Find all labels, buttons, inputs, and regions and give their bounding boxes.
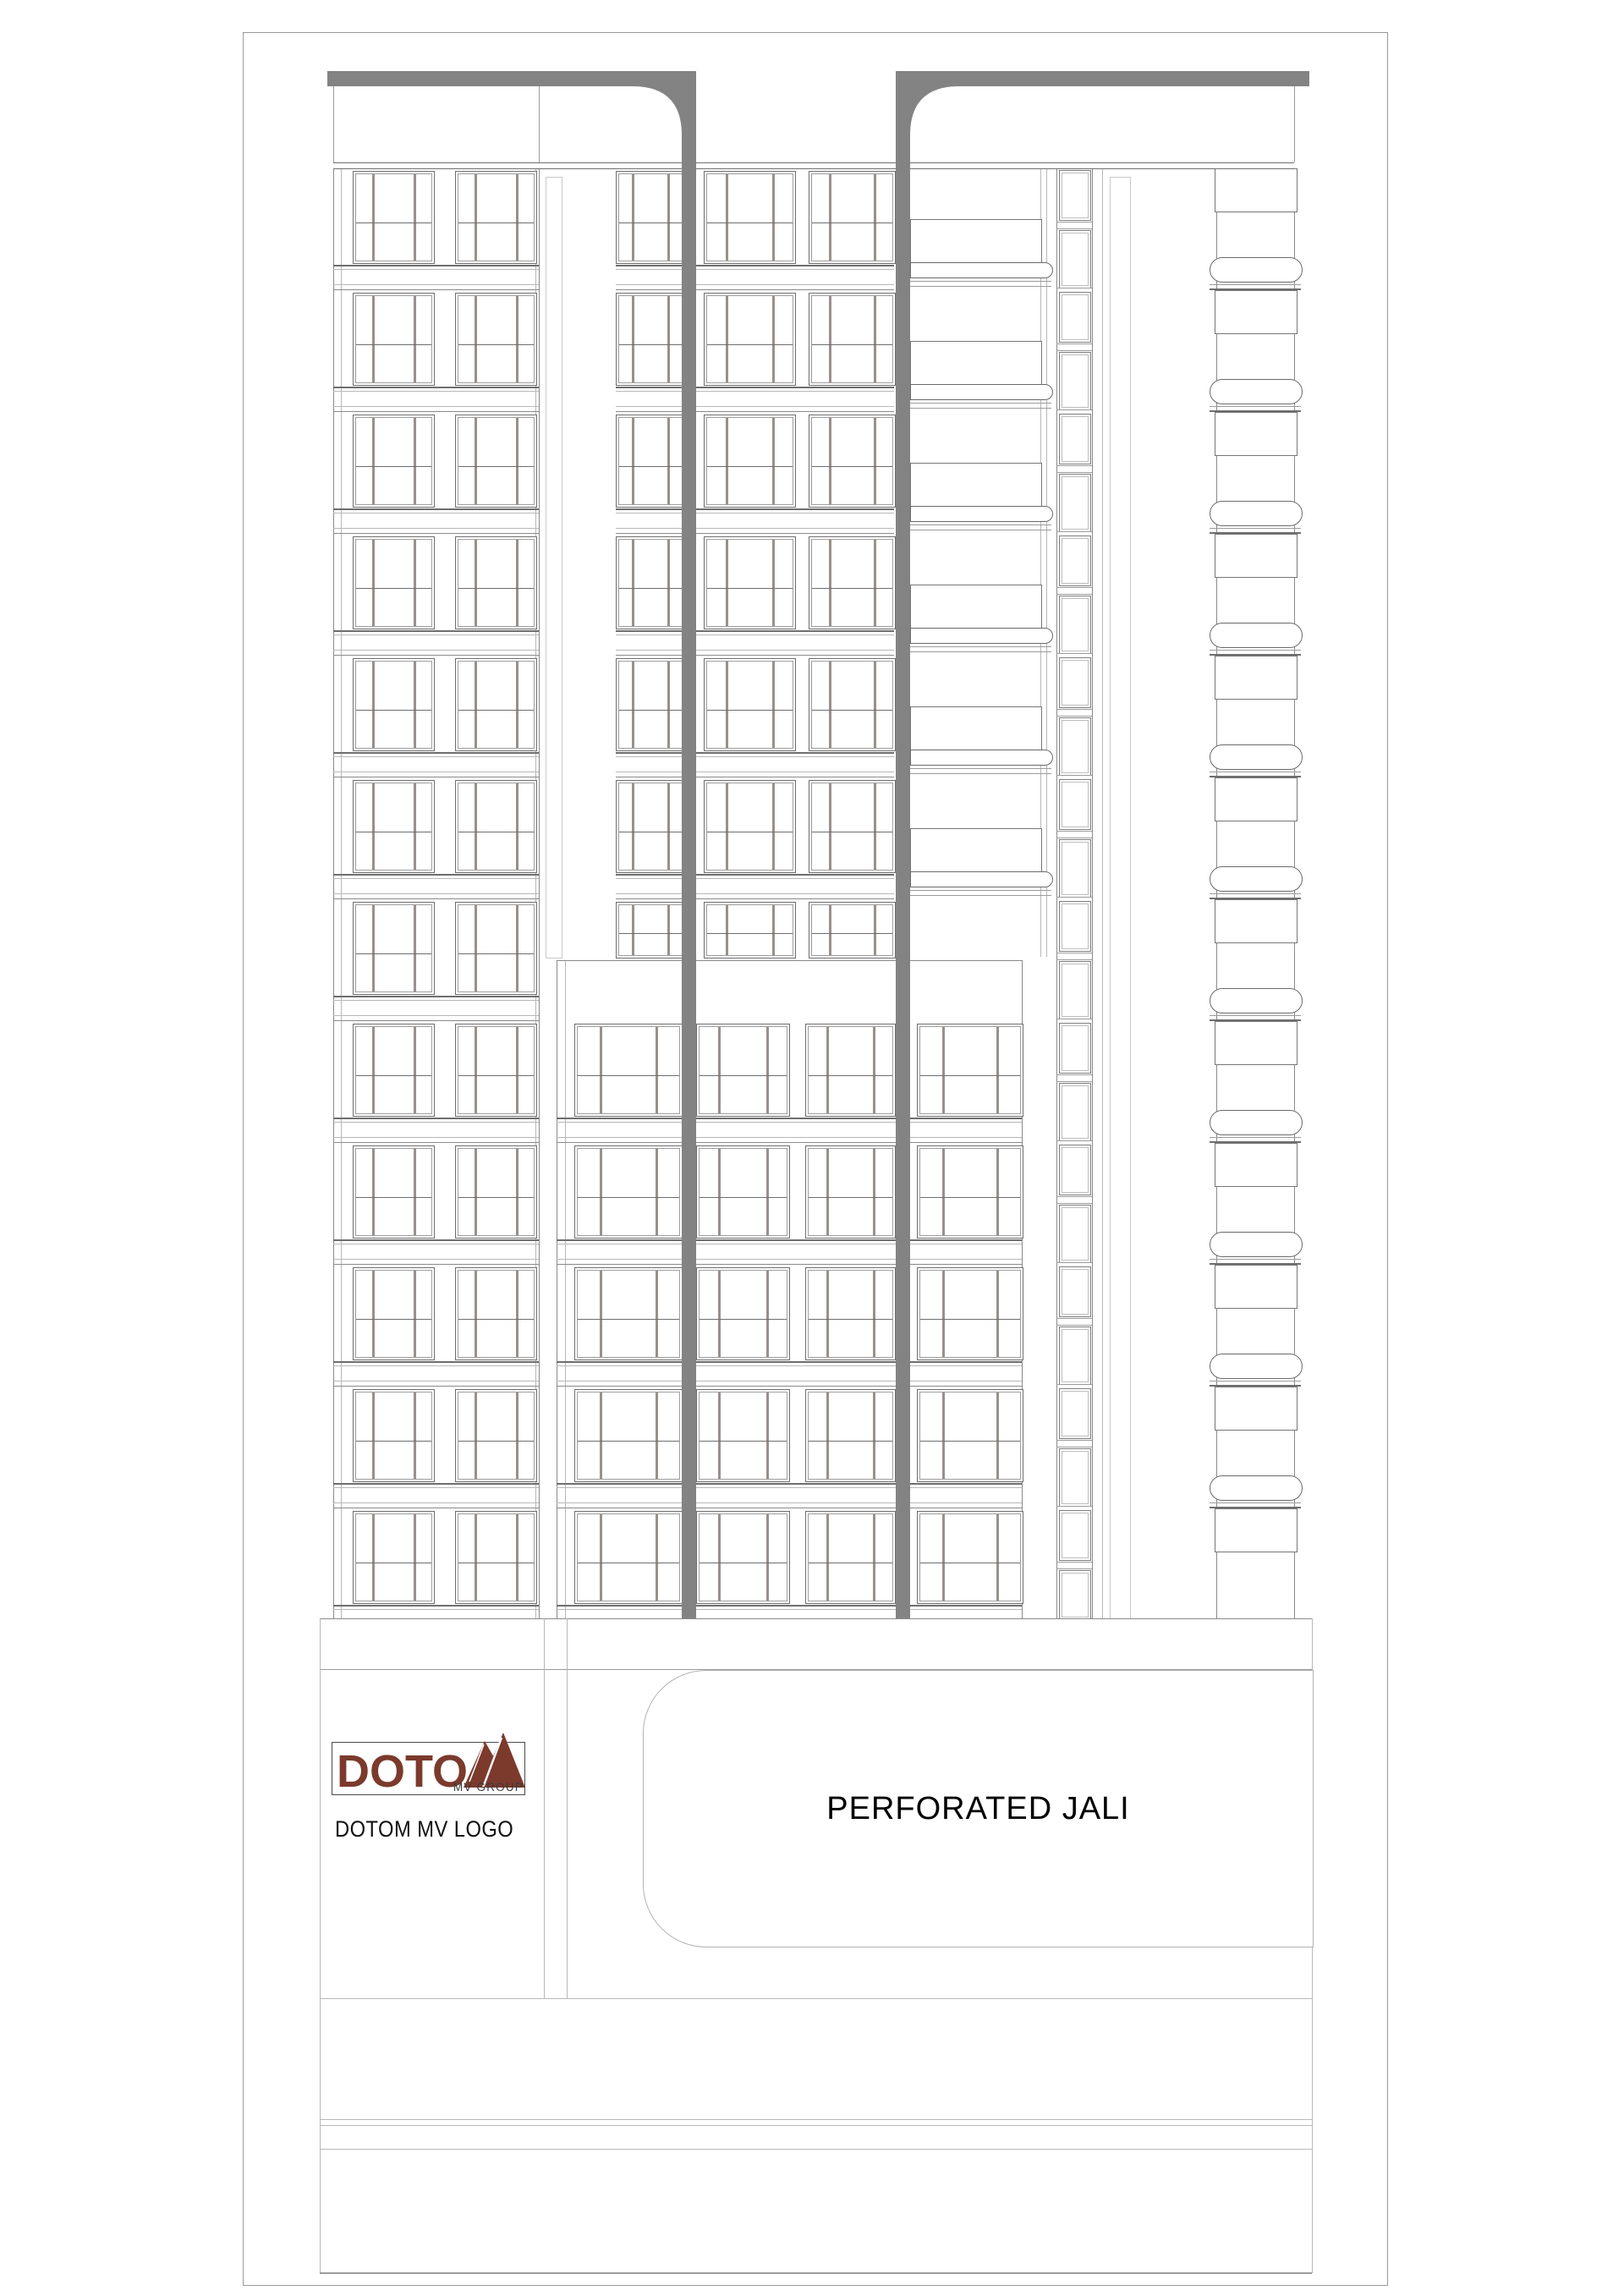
dotom-logo: DOTO MV GROUP — [328, 1722, 528, 1800]
sheet-border — [243, 32, 1388, 2286]
logo-caption: DOTOM MV LOGO — [335, 1816, 513, 1843]
logo-text-doto: DOTO — [337, 1746, 468, 1797]
perforated-jali-label: PERFORATED JALI — [826, 1791, 1129, 1827]
dotom-logo-frame: DOTO MV GROUP — [328, 1722, 528, 1800]
logo-subtext-mv-group: MV GROUP — [453, 1781, 524, 1793]
perforated-jali-panel: PERFORATED JALI — [643, 1670, 1314, 1947]
drawing-sheet: PERFORATED JALI DOTO MV GROUP DOTOM MV L… — [0, 0, 1624, 2296]
